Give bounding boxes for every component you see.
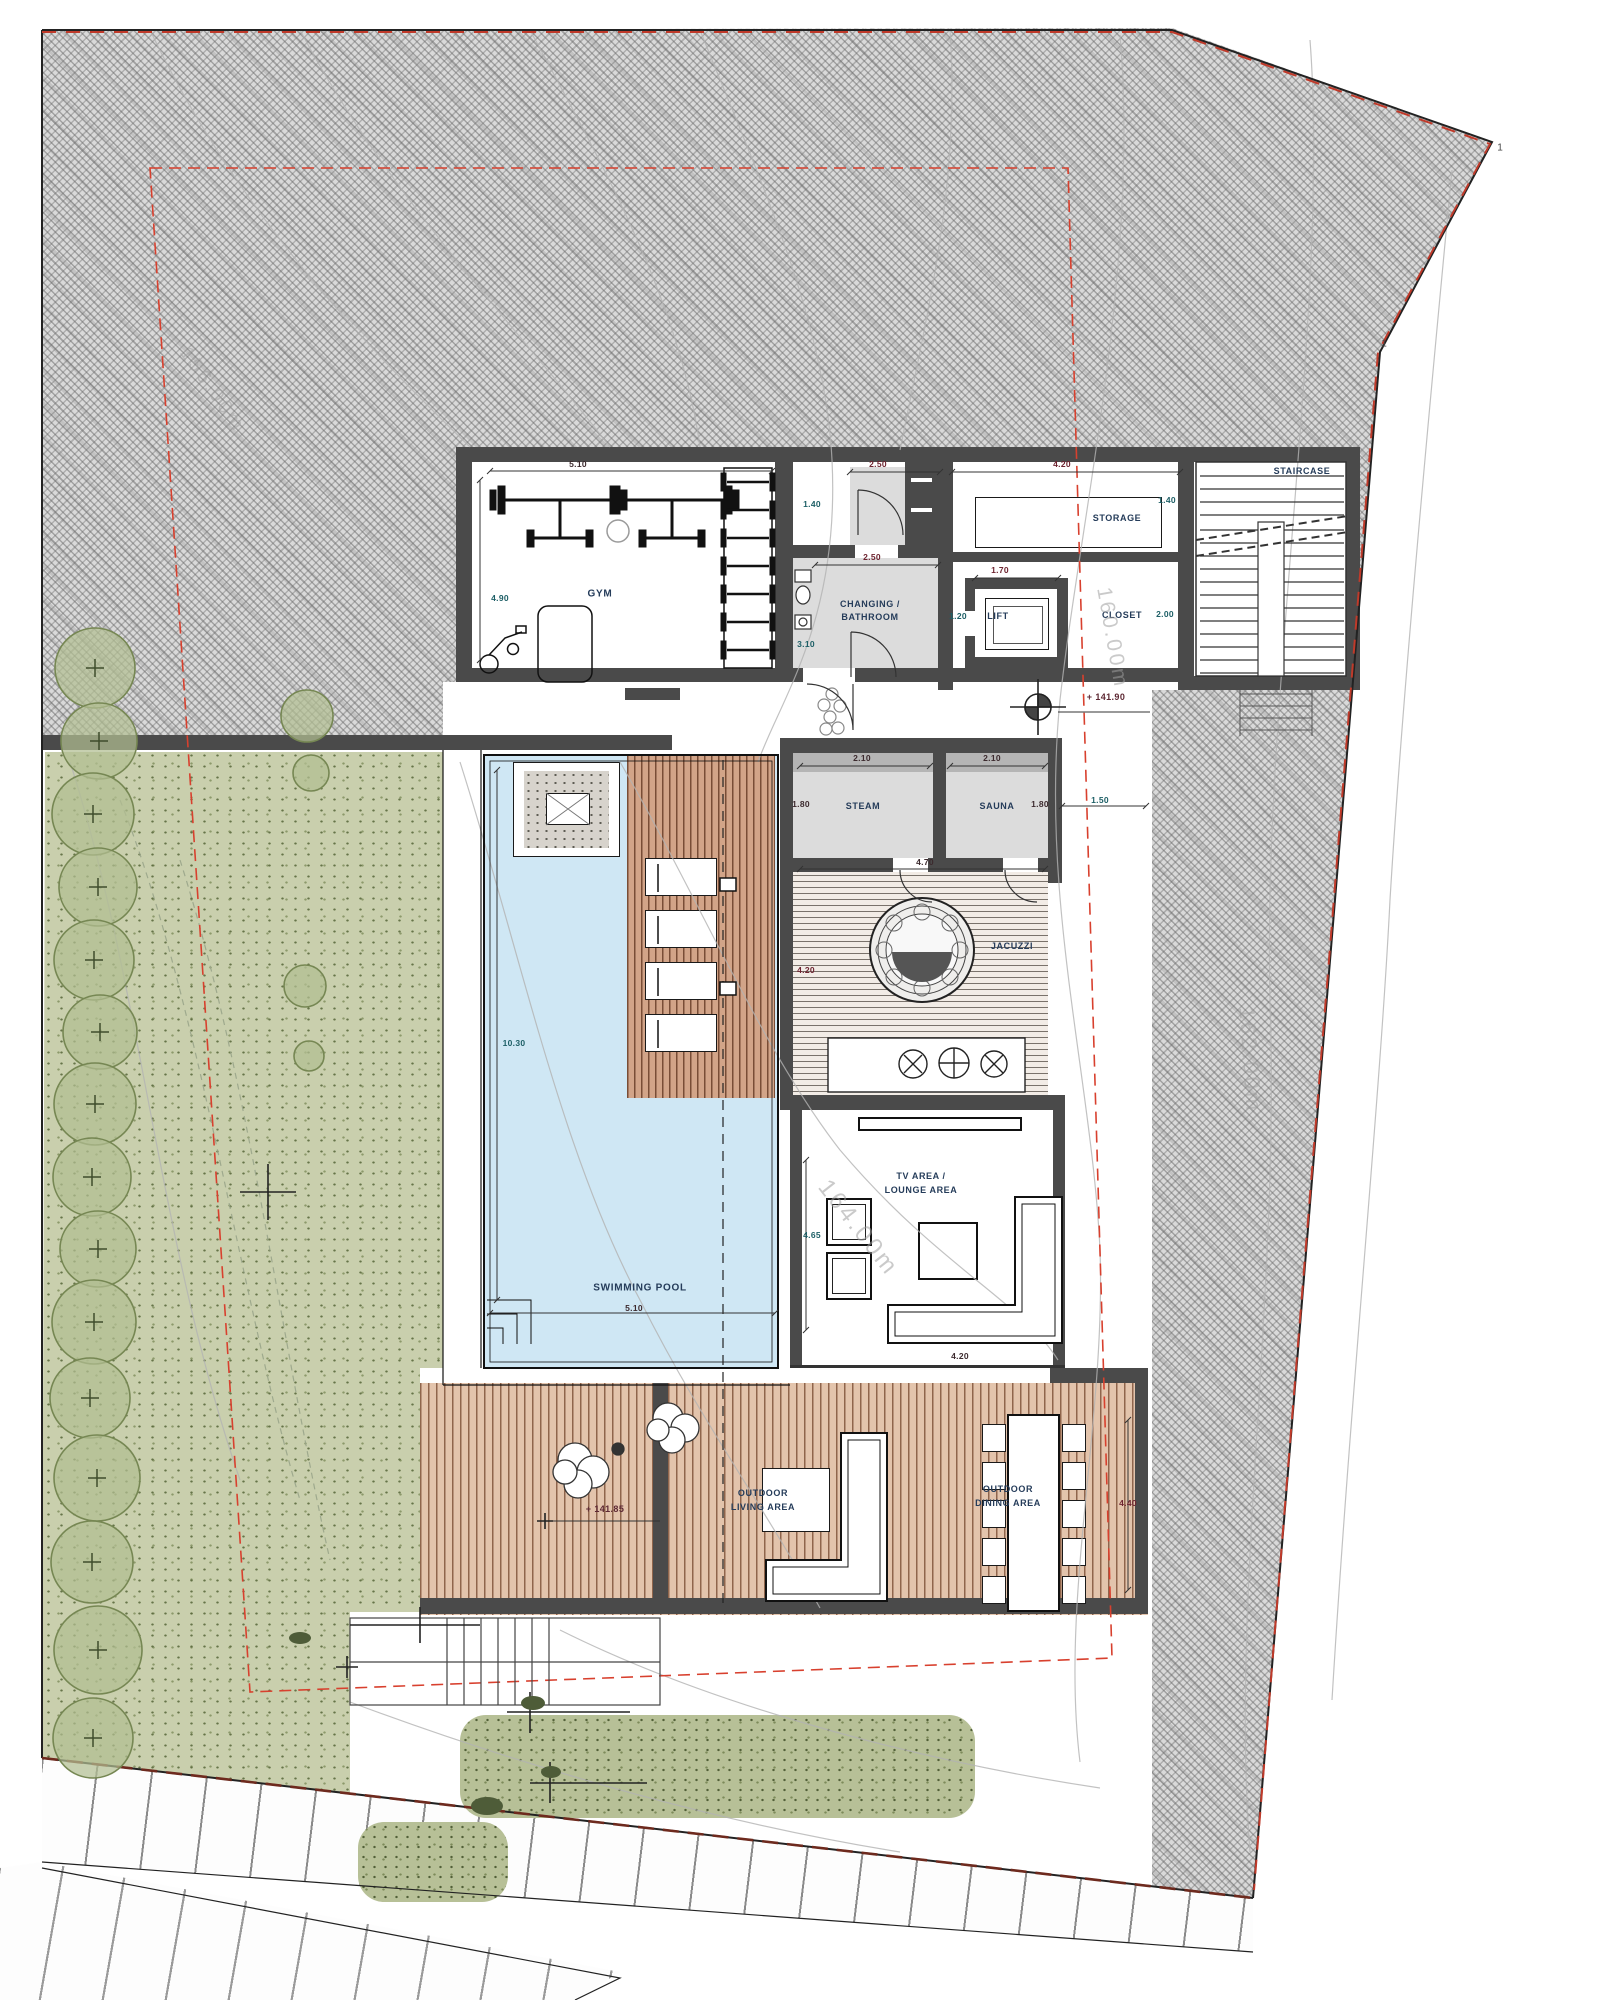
room-label-jacuzzi: JACUZZI <box>991 941 1033 951</box>
wall-slit <box>911 508 932 512</box>
wall <box>1178 447 1194 690</box>
room-label-storage: STORAGE <box>1093 513 1142 523</box>
room-label-staircase: STAIRCASE <box>1274 466 1331 476</box>
dining-chair <box>1062 1500 1086 1528</box>
room-label-tv-2: LOUNGE AREA <box>885 1185 958 1195</box>
wall <box>1038 858 1062 872</box>
wall <box>965 589 975 611</box>
wall <box>775 462 793 668</box>
room-label-gym: GYM <box>588 589 613 600</box>
dim-4-20-jacuzzi-deck: 4.20 <box>797 965 815 975</box>
wall <box>456 447 472 682</box>
room-label-outdoor-dining-1: OUTDOOR <box>983 1484 1033 1494</box>
dim-1-40-storage: 1.40 <box>1158 495 1176 505</box>
dim-1-50-side: 1.50 <box>1091 795 1109 805</box>
floor-plan-sheet: GYM CHANGING / BATHROOM STORAGE LIFT CLO… <box>0 0 1620 2000</box>
room-label-lift: LIFT <box>987 611 1008 621</box>
jacuzzi-deck <box>793 872 1048 1098</box>
dim-5-10-gym: 5.10 <box>569 459 587 469</box>
floor-sauna <box>946 772 1048 858</box>
gym-equipment <box>480 468 775 682</box>
pool-bench <box>625 688 680 700</box>
planting-patch <box>460 1715 975 1818</box>
dim-1-80-sauna: 1.80 <box>1031 799 1049 809</box>
room-label-outdoor-living-2: LIVING AREA <box>731 1502 795 1512</box>
dim-2-00-closet: 2.00 <box>1156 609 1174 619</box>
room-label-sauna: SAUNA <box>979 801 1014 811</box>
dim-5-10-pool: 5.10 <box>625 1303 643 1313</box>
wall <box>465 447 1360 462</box>
wall <box>1050 1368 1148 1383</box>
wall-shaft <box>905 462 938 545</box>
wall <box>965 657 1068 668</box>
dim-4-20-storage: 4.20 <box>1053 459 1071 469</box>
dining-chair <box>982 1576 1006 1604</box>
dim-4-65-tv: 4.65 <box>803 1230 821 1240</box>
wall <box>933 753 946 865</box>
dining-chair <box>1062 1576 1086 1604</box>
wall <box>952 552 1185 562</box>
wall <box>780 753 793 1098</box>
wall <box>793 545 855 558</box>
sun-lounger <box>645 858 717 896</box>
dining-chair <box>982 1538 1006 1566</box>
dining-chair <box>1062 1538 1086 1566</box>
wall-pool-top <box>42 735 672 750</box>
planting-patch <box>358 1822 508 1902</box>
floor-lobby <box>850 467 905 545</box>
dining-chair <box>1062 1462 1086 1490</box>
room-label-changing-2: BATHROOM <box>841 612 898 622</box>
dim-10-30-pool: 10.30 <box>503 1038 526 1048</box>
coffee-table <box>918 1222 978 1280</box>
tv-console <box>858 1117 1022 1131</box>
wall <box>780 738 1062 753</box>
wall <box>1053 1110 1065 1372</box>
dim-4-40-deck: 4.40 <box>1119 1498 1137 1508</box>
room-label-tv-1: TV AREA / <box>896 1171 945 1181</box>
wall <box>790 1110 802 1368</box>
wall <box>938 462 953 690</box>
wall <box>928 858 1003 872</box>
dim-4-90-gym: 4.90 <box>491 593 509 603</box>
level-marker-141-85: + 141.85 <box>586 1504 624 1514</box>
dining-chair <box>982 1424 1006 1452</box>
outdoor-rug <box>762 1468 830 1532</box>
dim-1-20-lift: 1.20 <box>949 611 967 621</box>
dining-table <box>1007 1414 1060 1612</box>
wall <box>1057 578 1068 668</box>
dining-chair <box>1062 1424 1086 1452</box>
sun-lounger <box>645 962 717 1000</box>
wall <box>1178 676 1360 690</box>
wall <box>1135 1383 1148 1614</box>
wall-thin <box>790 1365 1065 1368</box>
armchair-cushion <box>832 1258 866 1294</box>
dim-4-20-tv: 4.20 <box>951 1351 969 1361</box>
wall-slit <box>911 478 932 482</box>
wall <box>1346 447 1360 690</box>
dim-2-10-steam: 2.10 <box>853 753 871 763</box>
room-label-pool: SWIMMING POOL <box>593 1283 687 1294</box>
boundary-point-1b: 1 <box>1381 339 1387 350</box>
wall <box>456 668 803 682</box>
wall-deck-divider <box>653 1383 668 1598</box>
dim-4-70-jacuzzi-deck: 4.70 <box>916 857 934 867</box>
room-label-outdoor-dining-2: DINING AREA <box>975 1498 1041 1508</box>
dim-1-70-lift: 1.70 <box>991 565 1009 575</box>
pool-planter-tree-box <box>546 793 590 825</box>
wall <box>793 858 893 872</box>
dim-2-10-sauna: 2.10 <box>983 753 1001 763</box>
dim-1-80-steam: 1.80 <box>792 799 810 809</box>
floor-steam <box>793 772 933 858</box>
dim-1-40-wc: 1.40 <box>803 499 821 509</box>
boundary-point-1: 1 <box>1497 143 1503 154</box>
room-label-changing-1: CHANGING / <box>840 599 900 609</box>
wall <box>780 1095 1065 1110</box>
sun-lounger <box>645 910 717 948</box>
wall <box>965 578 1068 589</box>
dim-2-50-changing: 2.50 <box>863 552 881 562</box>
sun-lounger <box>645 1014 717 1052</box>
room-label-outdoor-living-1: OUTDOOR <box>738 1488 788 1498</box>
wall <box>965 636 975 657</box>
room-label-steam: STEAM <box>846 801 881 811</box>
dim-2-50-lobby: 2.50 <box>869 459 887 469</box>
dim-3-10-changing: 3.10 <box>797 639 815 649</box>
level-marker-141-90: + 141.90 <box>1087 692 1125 702</box>
